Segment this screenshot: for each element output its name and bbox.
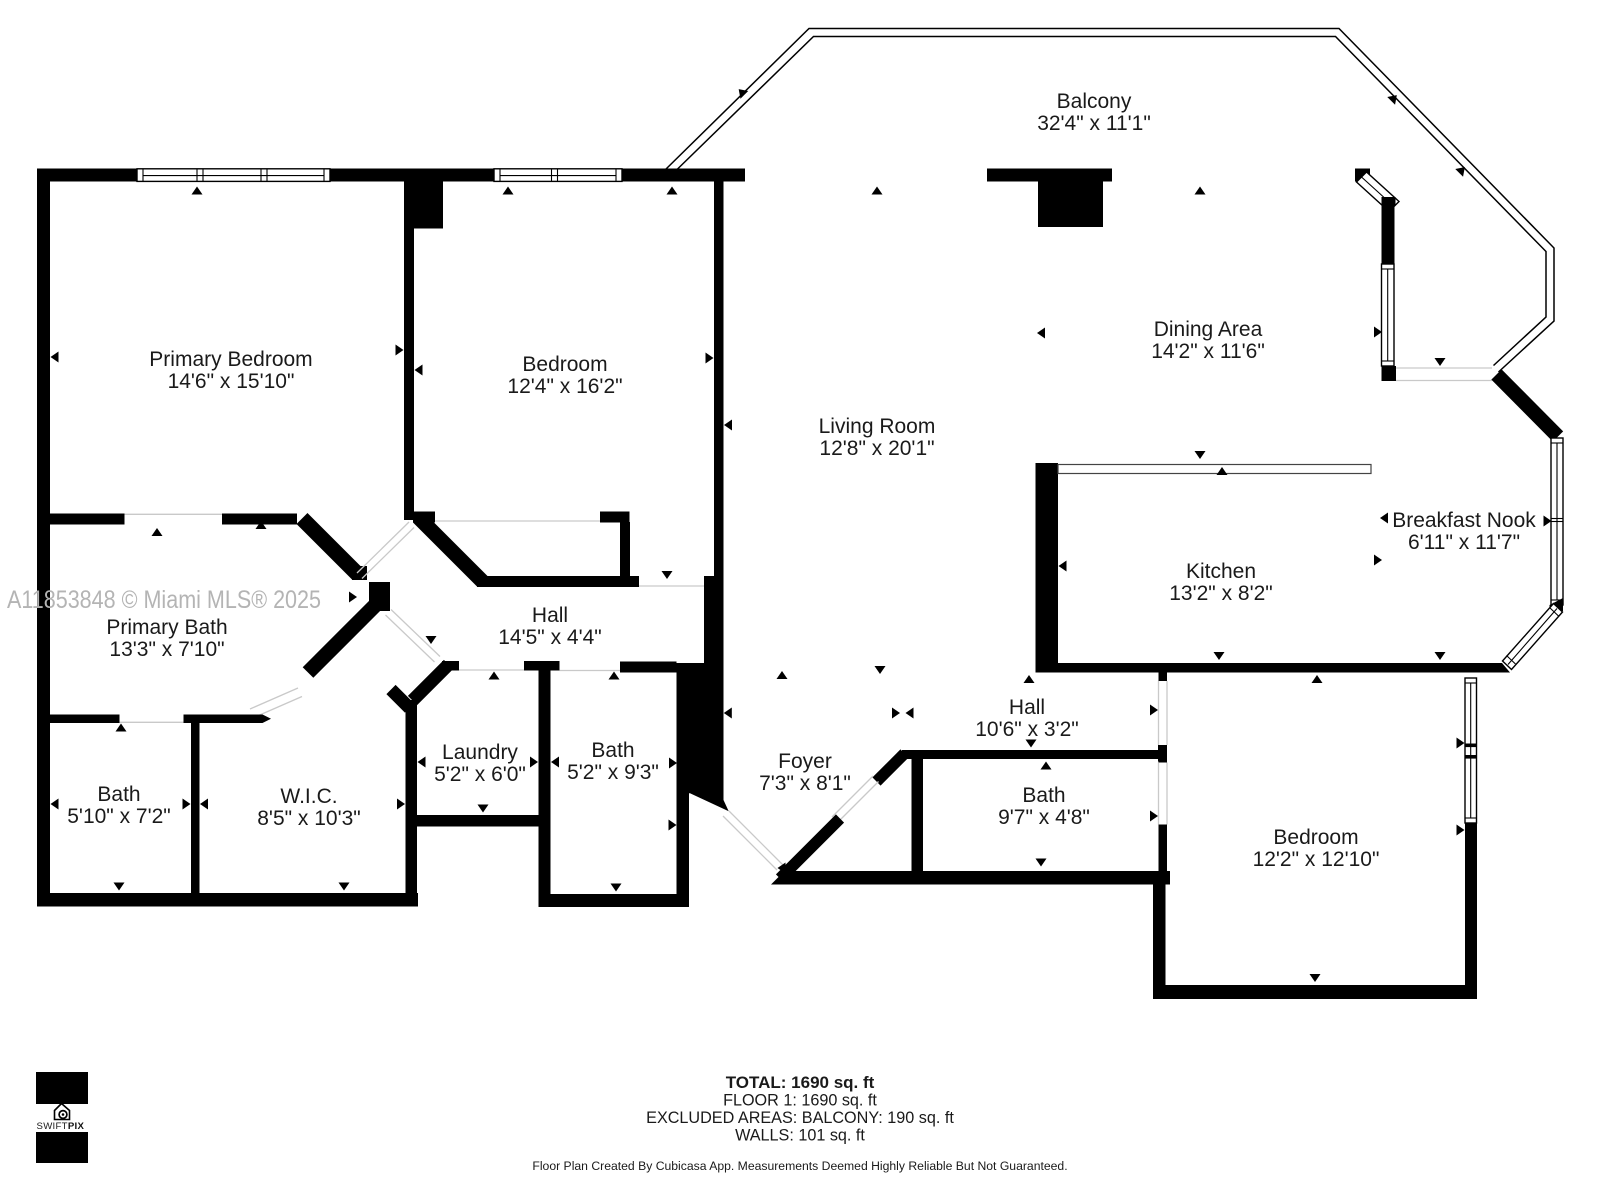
svg-text:Hall: Hall — [532, 604, 568, 627]
svg-text:Bedroom: Bedroom — [522, 353, 607, 376]
svg-text:TOTAL: 1690 sq. ft: TOTAL: 1690 sq. ft — [726, 1073, 875, 1092]
svg-text:13'2" x 8'2": 13'2" x 8'2" — [1169, 582, 1273, 605]
svg-text:Primary Bedroom: Primary Bedroom — [149, 348, 312, 371]
svg-text:A11853848 © Miami MLS® 2025: A11853848 © Miami MLS® 2025 — [7, 586, 321, 614]
svg-text:10'6" x 3'2": 10'6" x 3'2" — [975, 718, 1079, 741]
svg-text:Balcony: Balcony — [1057, 90, 1132, 113]
svg-text:Living Room: Living Room — [819, 415, 936, 438]
svg-text:Bath: Bath — [97, 783, 140, 806]
svg-text:12'2" x 12'10": 12'2" x 12'10" — [1253, 848, 1380, 871]
svg-text:Bedroom: Bedroom — [1273, 826, 1358, 849]
svg-text:EXCLUDED AREAS: BALCONY: 190 s: EXCLUDED AREAS: BALCONY: 190 sq. ft — [646, 1109, 954, 1127]
svg-text:Hall: Hall — [1009, 696, 1045, 719]
svg-text:5'10" x 7'2": 5'10" x 7'2" — [67, 805, 171, 828]
svg-text:SWIFTPIX: SWIFTPIX — [37, 1121, 85, 1132]
svg-text:8'5" x 10'3": 8'5" x 10'3" — [257, 807, 361, 830]
svg-text:Primary Bath: Primary Bath — [106, 616, 227, 639]
svg-text:Kitchen: Kitchen — [1186, 560, 1256, 583]
svg-text:14'6" x 15'10": 14'6" x 15'10" — [168, 370, 295, 393]
svg-text:13'3" x 7'10": 13'3" x 7'10" — [109, 638, 224, 661]
svg-text:Dining Area: Dining Area — [1154, 318, 1263, 341]
svg-text:Floor Plan Created By Cubicasa: Floor Plan Created By Cubicasa App. Meas… — [532, 1159, 1067, 1173]
svg-text:12'4" x 16'2": 12'4" x 16'2" — [507, 375, 622, 398]
svg-text:Laundry: Laundry — [442, 741, 518, 764]
svg-text:5'2" x 9'3": 5'2" x 9'3" — [567, 761, 659, 784]
svg-text:12'8" x 20'1": 12'8" x 20'1" — [819, 437, 934, 460]
svg-text:Foyer: Foyer — [778, 750, 832, 773]
svg-text:FLOOR 1: 1690 sq. ft: FLOOR 1: 1690 sq. ft — [723, 1092, 877, 1110]
svg-text:5'2" x 6'0": 5'2" x 6'0" — [434, 763, 526, 786]
svg-text:9'7" x 4'8": 9'7" x 4'8" — [998, 806, 1090, 829]
svg-text:32'4" x 11'1": 32'4" x 11'1" — [1037, 112, 1151, 135]
svg-text:WALLS: 101 sq. ft: WALLS: 101 sq. ft — [735, 1127, 865, 1145]
svg-text:6'11" x 11'7": 6'11" x 11'7" — [1408, 531, 1520, 554]
svg-text:W.I.C.: W.I.C. — [280, 785, 337, 808]
svg-text:Bath: Bath — [591, 739, 634, 762]
svg-text:14'5" x 4'4": 14'5" x 4'4" — [498, 626, 602, 649]
svg-text:7'3" x 8'1": 7'3" x 8'1" — [759, 772, 851, 795]
svg-text:14'2" x 11'6": 14'2" x 11'6" — [1151, 340, 1265, 363]
svg-text:Bath: Bath — [1022, 784, 1065, 807]
svg-text:Breakfast Nook: Breakfast Nook — [1392, 509, 1536, 532]
